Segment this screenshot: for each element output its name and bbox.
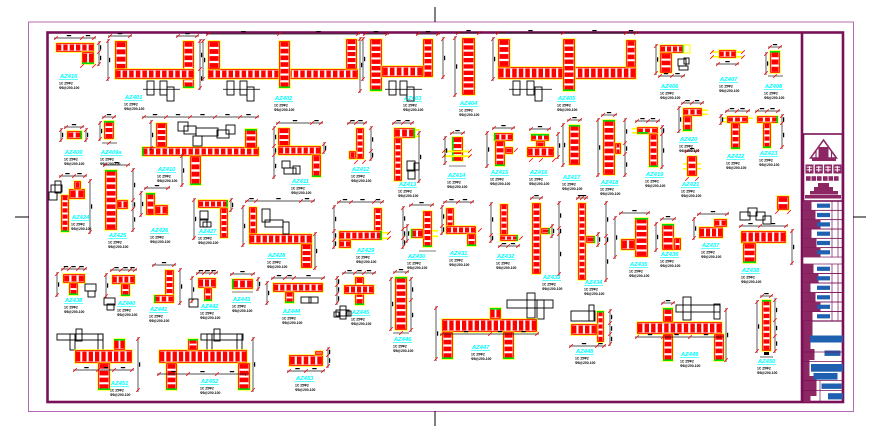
svg-text:Φ8@200-100: Φ8@200-100 xyxy=(232,309,253,313)
svg-text:Φ8@200-100: Φ8@200-100 xyxy=(108,245,129,249)
svg-text:Φ8@200-100: Φ8@200-100 xyxy=(71,227,92,231)
svg-text:Φ8@200-100: Φ8@200-100 xyxy=(764,96,785,100)
svg-text:Φ8@200-100: Φ8@200-100 xyxy=(274,108,295,112)
svg-text:Φ8@200-100: Φ8@200-100 xyxy=(198,241,219,245)
svg-text:Φ8@200-100: Φ8@200-100 xyxy=(681,194,702,198)
svg-text:Φ8@200-100: Φ8@200-100 xyxy=(645,184,666,188)
svg-text:Φ8@200-100: Φ8@200-100 xyxy=(351,322,372,326)
svg-text:Φ8@200-100: Φ8@200-100 xyxy=(291,191,312,195)
svg-text:Φ8@200-100: Φ8@200-100 xyxy=(157,179,178,183)
svg-text:Φ8@200-100: Φ8@200-100 xyxy=(680,364,701,368)
svg-text:Φ8@200-100: Φ8@200-100 xyxy=(356,260,377,264)
svg-text:Φ8@200-100: Φ8@200-100 xyxy=(398,194,419,198)
svg-text:Φ8@200-100: Φ8@200-100 xyxy=(117,313,138,317)
svg-text:Φ8@200-100: Φ8@200-100 xyxy=(542,287,563,291)
svg-text:Φ8@200-100: Φ8@200-100 xyxy=(403,108,424,112)
svg-text:Φ8@200-100: Φ8@200-100 xyxy=(471,357,492,361)
svg-text:Φ8@200-100: Φ8@200-100 xyxy=(295,388,316,392)
svg-text:Φ8@200-100: Φ8@200-100 xyxy=(110,393,131,397)
svg-text:Φ8@200-100: Φ8@200-100 xyxy=(64,310,85,314)
svg-text:Φ8@200-100: Φ8@200-100 xyxy=(490,182,511,186)
svg-text:Φ8@200-100: Φ8@200-100 xyxy=(719,89,740,93)
svg-text:Φ8@200-100: Φ8@200-100 xyxy=(200,391,221,395)
svg-text:Φ8@200-100: Φ8@200-100 xyxy=(393,349,414,353)
svg-text:Φ8@200-100: Φ8@200-100 xyxy=(59,86,80,90)
svg-text:Φ8@200-100: Φ8@200-100 xyxy=(449,263,470,267)
svg-text:Φ8@200-100: Φ8@200-100 xyxy=(557,108,578,112)
svg-text:Φ8@200-100: Φ8@200-100 xyxy=(496,266,517,270)
svg-text:Φ8@200-100: Φ8@200-100 xyxy=(759,163,780,167)
svg-text:Φ8@200-100: Φ8@200-100 xyxy=(267,265,288,269)
svg-text:Φ8@200-100: Φ8@200-100 xyxy=(741,280,762,284)
svg-text:Φ8@200-100: Φ8@200-100 xyxy=(447,185,468,189)
svg-text:Φ8@200-100: Φ8@200-100 xyxy=(351,179,372,183)
svg-text:Φ8@200-100: Φ8@200-100 xyxy=(629,274,650,278)
svg-text:Φ8@200-100: Φ8@200-100 xyxy=(200,316,221,320)
svg-text:Φ8@200-100: Φ8@200-100 xyxy=(562,187,583,191)
svg-text:Φ8@200-100: Φ8@200-100 xyxy=(701,255,722,259)
svg-text:Φ8@200-100: Φ8@200-100 xyxy=(726,166,747,170)
svg-text:Φ8@200-100: Φ8@200-100 xyxy=(282,321,303,325)
svg-text:Φ8@200-100: Φ8@200-100 xyxy=(64,162,85,166)
svg-text:Φ8@200-100: Φ8@200-100 xyxy=(150,240,171,244)
svg-text:Φ8@200-100: Φ8@200-100 xyxy=(600,192,621,196)
svg-text:Φ8@200-100: Φ8@200-100 xyxy=(407,266,428,270)
svg-text:Φ8@200-100: Φ8@200-100 xyxy=(575,361,596,365)
svg-text:Φ8@200-100: Φ8@200-100 xyxy=(757,371,778,375)
svg-text:Φ8@200-100: Φ8@200-100 xyxy=(124,107,145,111)
svg-text:Φ8@200-100: Φ8@200-100 xyxy=(660,264,681,268)
svg-text:Φ8@200-100: Φ8@200-100 xyxy=(584,292,605,296)
svg-text:Φ8@200-100: Φ8@200-100 xyxy=(459,113,480,117)
svg-text:Φ8@200-100: Φ8@200-100 xyxy=(529,182,550,186)
svg-text:Φ8@200-100: Φ8@200-100 xyxy=(149,319,170,323)
svg-text:Φ8@200-100: Φ8@200-100 xyxy=(660,96,681,100)
